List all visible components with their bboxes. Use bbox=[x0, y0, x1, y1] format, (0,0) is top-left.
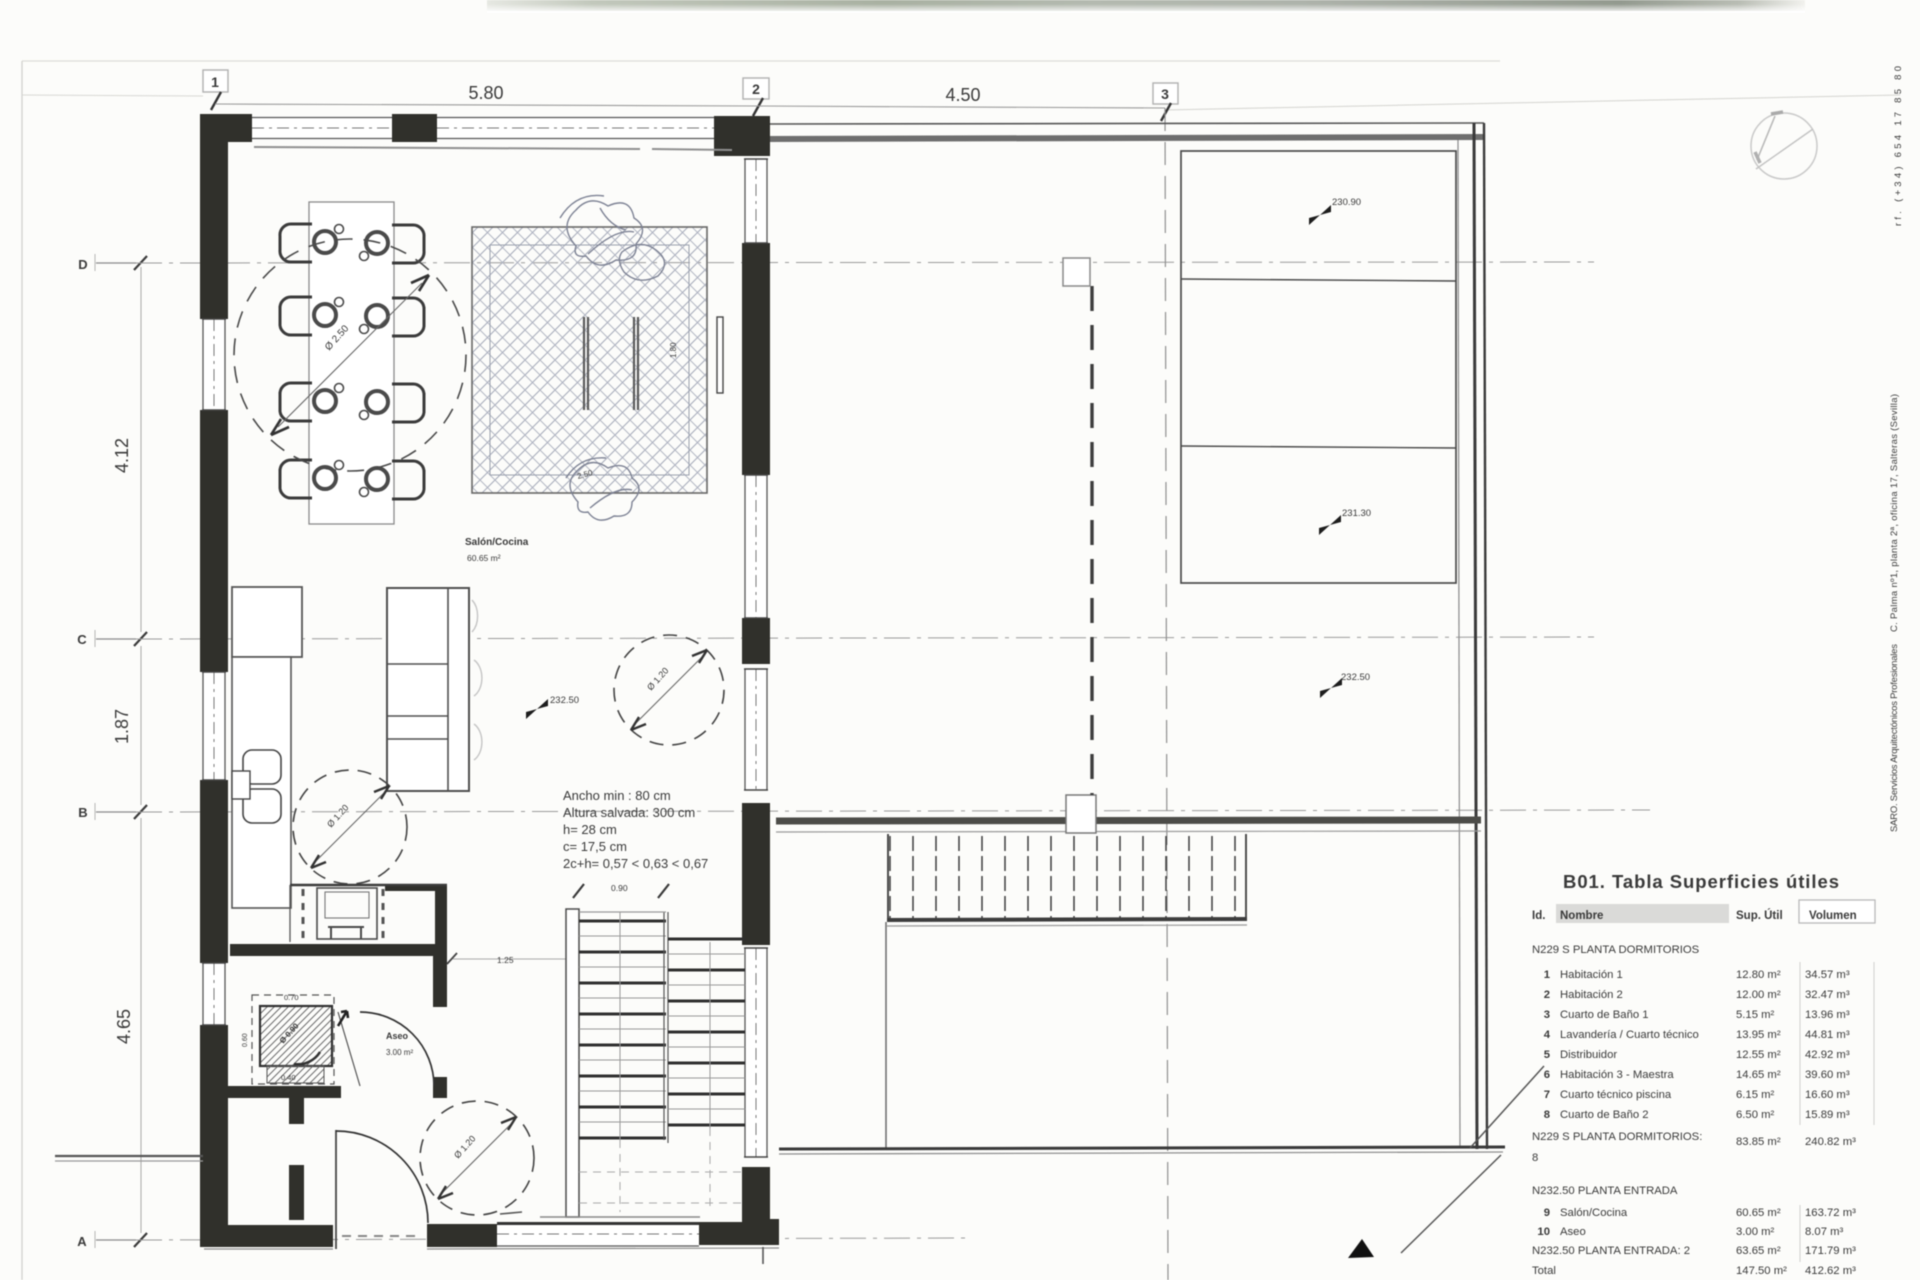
svg-text:12.80 m²: 12.80 m² bbox=[1736, 969, 1781, 981]
svg-text:39.60 m³: 39.60 m³ bbox=[1805, 1069, 1850, 1081]
svg-text:B: B bbox=[78, 805, 87, 820]
svg-text:1.80: 1.80 bbox=[669, 342, 678, 358]
svg-text:1.87: 1.87 bbox=[112, 709, 132, 744]
svg-text:44.81 m³: 44.81 m³ bbox=[1805, 1029, 1850, 1041]
svg-text:5: 5 bbox=[1544, 1049, 1550, 1061]
svg-text:Ancho min : 80 cm: Ancho min : 80 cm bbox=[563, 788, 671, 803]
svg-text:Sup. Útil: Sup. Útil bbox=[1736, 909, 1783, 922]
svg-text:0.70: 0.70 bbox=[284, 993, 299, 1002]
svg-text:16.60 m³: 16.60 m³ bbox=[1805, 1089, 1850, 1101]
svg-text:N229 S PLANTA DORMITORIOS: N229 S PLANTA DORMITORIOS bbox=[1532, 944, 1700, 956]
svg-text:0.60: 0.60 bbox=[242, 1033, 249, 1047]
svg-text:Lavandería / Cuarto técnico: Lavandería / Cuarto técnico bbox=[1560, 1029, 1699, 1041]
svg-text:0.40: 0.40 bbox=[281, 1073, 296, 1082]
svg-text:N232.50 PLANTA ENTRADA: N232.50 PLANTA ENTRADA bbox=[1532, 1185, 1678, 1197]
svg-text:10: 10 bbox=[1537, 1226, 1550, 1238]
svg-text:1: 1 bbox=[211, 74, 219, 90]
svg-text:rf. (+34) 654 17 85 80: rf. (+34) 654 17 85 80 bbox=[1893, 66, 1904, 226]
svg-text:Id.: Id. bbox=[1532, 910, 1545, 922]
svg-text:60.65 m²: 60.65 m² bbox=[1736, 1207, 1781, 1219]
svg-text:0.90: 0.90 bbox=[611, 883, 628, 893]
svg-text:12.55 m²: 12.55 m² bbox=[1736, 1049, 1781, 1061]
svg-text:Cuarto de Baño 1: Cuarto de Baño 1 bbox=[1560, 1009, 1649, 1021]
svg-text:3.00 m²: 3.00 m² bbox=[1736, 1226, 1775, 1238]
svg-text:Habitación 1: Habitación 1 bbox=[1560, 969, 1623, 981]
svg-text:3: 3 bbox=[1544, 1009, 1550, 1021]
svg-text:A: A bbox=[77, 1234, 87, 1249]
svg-text:60.65 m²: 60.65 m² bbox=[467, 553, 501, 563]
svg-text:Ø 1.20: Ø 1.20 bbox=[645, 666, 671, 693]
svg-text:8.07 m³: 8.07 m³ bbox=[1805, 1226, 1844, 1238]
svg-text:SARO. Servicios Arquitectónico: SARO. Servicios Arquitectónicos Profesio… bbox=[1889, 644, 1900, 832]
svg-text:Cuarto de Baño 2: Cuarto de Baño 2 bbox=[1560, 1109, 1649, 1121]
svg-text:Ø 1.20: Ø 1.20 bbox=[325, 803, 351, 830]
svg-text:8: 8 bbox=[1544, 1109, 1550, 1121]
svg-text:232.50: 232.50 bbox=[1341, 672, 1370, 683]
svg-text:147.50 m²: 147.50 m² bbox=[1736, 1265, 1787, 1277]
svg-text:Salón/Cocina: Salón/Cocina bbox=[1560, 1207, 1628, 1219]
svg-text:Volumen: Volumen bbox=[1809, 910, 1857, 922]
svg-text:2c+h= 0,57 < 0,63 < 0,67: 2c+h= 0,57 < 0,63 < 0,67 bbox=[563, 856, 708, 871]
svg-text:231.30: 231.30 bbox=[1342, 508, 1371, 519]
svg-text:3.00 m²: 3.00 m² bbox=[386, 1048, 413, 1057]
svg-text:6.15 m²: 6.15 m² bbox=[1736, 1089, 1775, 1101]
svg-text:Habitación 2: Habitación 2 bbox=[1560, 989, 1623, 1001]
svg-text:c= 17,5 cm: c= 17,5 cm bbox=[563, 839, 627, 854]
svg-text:13.95 m²: 13.95 m² bbox=[1736, 1029, 1781, 1041]
svg-text:Habitación 3 - Maestra: Habitación 3 - Maestra bbox=[1560, 1069, 1674, 1081]
svg-text:42.92 m³: 42.92 m³ bbox=[1805, 1049, 1850, 1061]
svg-text:8: 8 bbox=[1532, 1152, 1538, 1164]
svg-text:N232.50 PLANTA ENTRADA: 2: N232.50 PLANTA ENTRADA: 2 bbox=[1532, 1245, 1690, 1257]
svg-text:3: 3 bbox=[1161, 86, 1169, 102]
svg-text:83.85 m²: 83.85 m² bbox=[1736, 1136, 1781, 1148]
svg-text:4.50: 4.50 bbox=[945, 85, 980, 105]
svg-text:7: 7 bbox=[1544, 1089, 1550, 1101]
svg-text:163.72 m³: 163.72 m³ bbox=[1805, 1207, 1856, 1219]
svg-text:5.80: 5.80 bbox=[468, 83, 503, 103]
svg-text:Salón/Cocina: Salón/Cocina bbox=[465, 537, 529, 548]
svg-text:Distribuidor: Distribuidor bbox=[1560, 1049, 1617, 1061]
svg-text:240.82 m³: 240.82 m³ bbox=[1805, 1136, 1856, 1148]
svg-text:13.96 m³: 13.96 m³ bbox=[1805, 1009, 1850, 1021]
svg-text:412.62 m³: 412.62 m³ bbox=[1805, 1265, 1856, 1277]
svg-text:C. Palma nº1, planta 2ª, ofici: C. Palma nº1, planta 2ª, oficina 17, Sal… bbox=[1889, 394, 1900, 632]
svg-text:1: 1 bbox=[1544, 969, 1550, 981]
svg-text:2: 2 bbox=[752, 81, 760, 97]
svg-text:63.65 m²: 63.65 m² bbox=[1736, 1245, 1781, 1257]
svg-text:2: 2 bbox=[1544, 989, 1550, 1001]
svg-text:Altura salvada: 300 cm: Altura salvada: 300 cm bbox=[563, 805, 695, 820]
svg-text:Total: Total bbox=[1532, 1265, 1556, 1277]
svg-text:5.15 m²: 5.15 m² bbox=[1736, 1009, 1775, 1021]
svg-text:Cuarto técnico piscina: Cuarto técnico piscina bbox=[1560, 1089, 1672, 1101]
svg-text:4.12: 4.12 bbox=[112, 438, 132, 473]
svg-text:9: 9 bbox=[1544, 1207, 1550, 1219]
svg-text:6: 6 bbox=[1544, 1069, 1550, 1081]
svg-text:232.50: 232.50 bbox=[550, 695, 579, 706]
svg-text:1.25: 1.25 bbox=[497, 955, 514, 965]
svg-text:12.00 m²: 12.00 m² bbox=[1736, 989, 1781, 1001]
svg-text:171.79 m³: 171.79 m³ bbox=[1805, 1245, 1856, 1257]
svg-text:14.65 m²: 14.65 m² bbox=[1736, 1069, 1781, 1081]
svg-text:Aseo: Aseo bbox=[1560, 1226, 1586, 1238]
svg-text:34.57 m³: 34.57 m³ bbox=[1805, 969, 1850, 981]
svg-text:D: D bbox=[78, 257, 87, 272]
svg-text:N229 S PLANTA DORMITORIOS:: N229 S PLANTA DORMITORIOS: bbox=[1532, 1131, 1702, 1143]
svg-text:15.89 m³: 15.89 m³ bbox=[1805, 1109, 1850, 1121]
svg-text:32.47 m³: 32.47 m³ bbox=[1805, 989, 1850, 1001]
svg-text:B01. Tabla Superficies útiles: B01. Tabla Superficies útiles bbox=[1563, 871, 1839, 892]
svg-text:4.65: 4.65 bbox=[114, 1009, 134, 1044]
svg-text:6.50 m²: 6.50 m² bbox=[1736, 1109, 1775, 1121]
svg-text:h= 28 cm: h= 28 cm bbox=[563, 822, 617, 837]
svg-text:C: C bbox=[77, 632, 87, 647]
svg-text:230.90: 230.90 bbox=[1332, 197, 1361, 208]
svg-text:Ø 1.20: Ø 1.20 bbox=[452, 1134, 478, 1161]
svg-text:Aseo: Aseo bbox=[386, 1031, 409, 1041]
svg-text:4: 4 bbox=[1544, 1029, 1551, 1041]
svg-text:Nombre: Nombre bbox=[1560, 910, 1603, 922]
